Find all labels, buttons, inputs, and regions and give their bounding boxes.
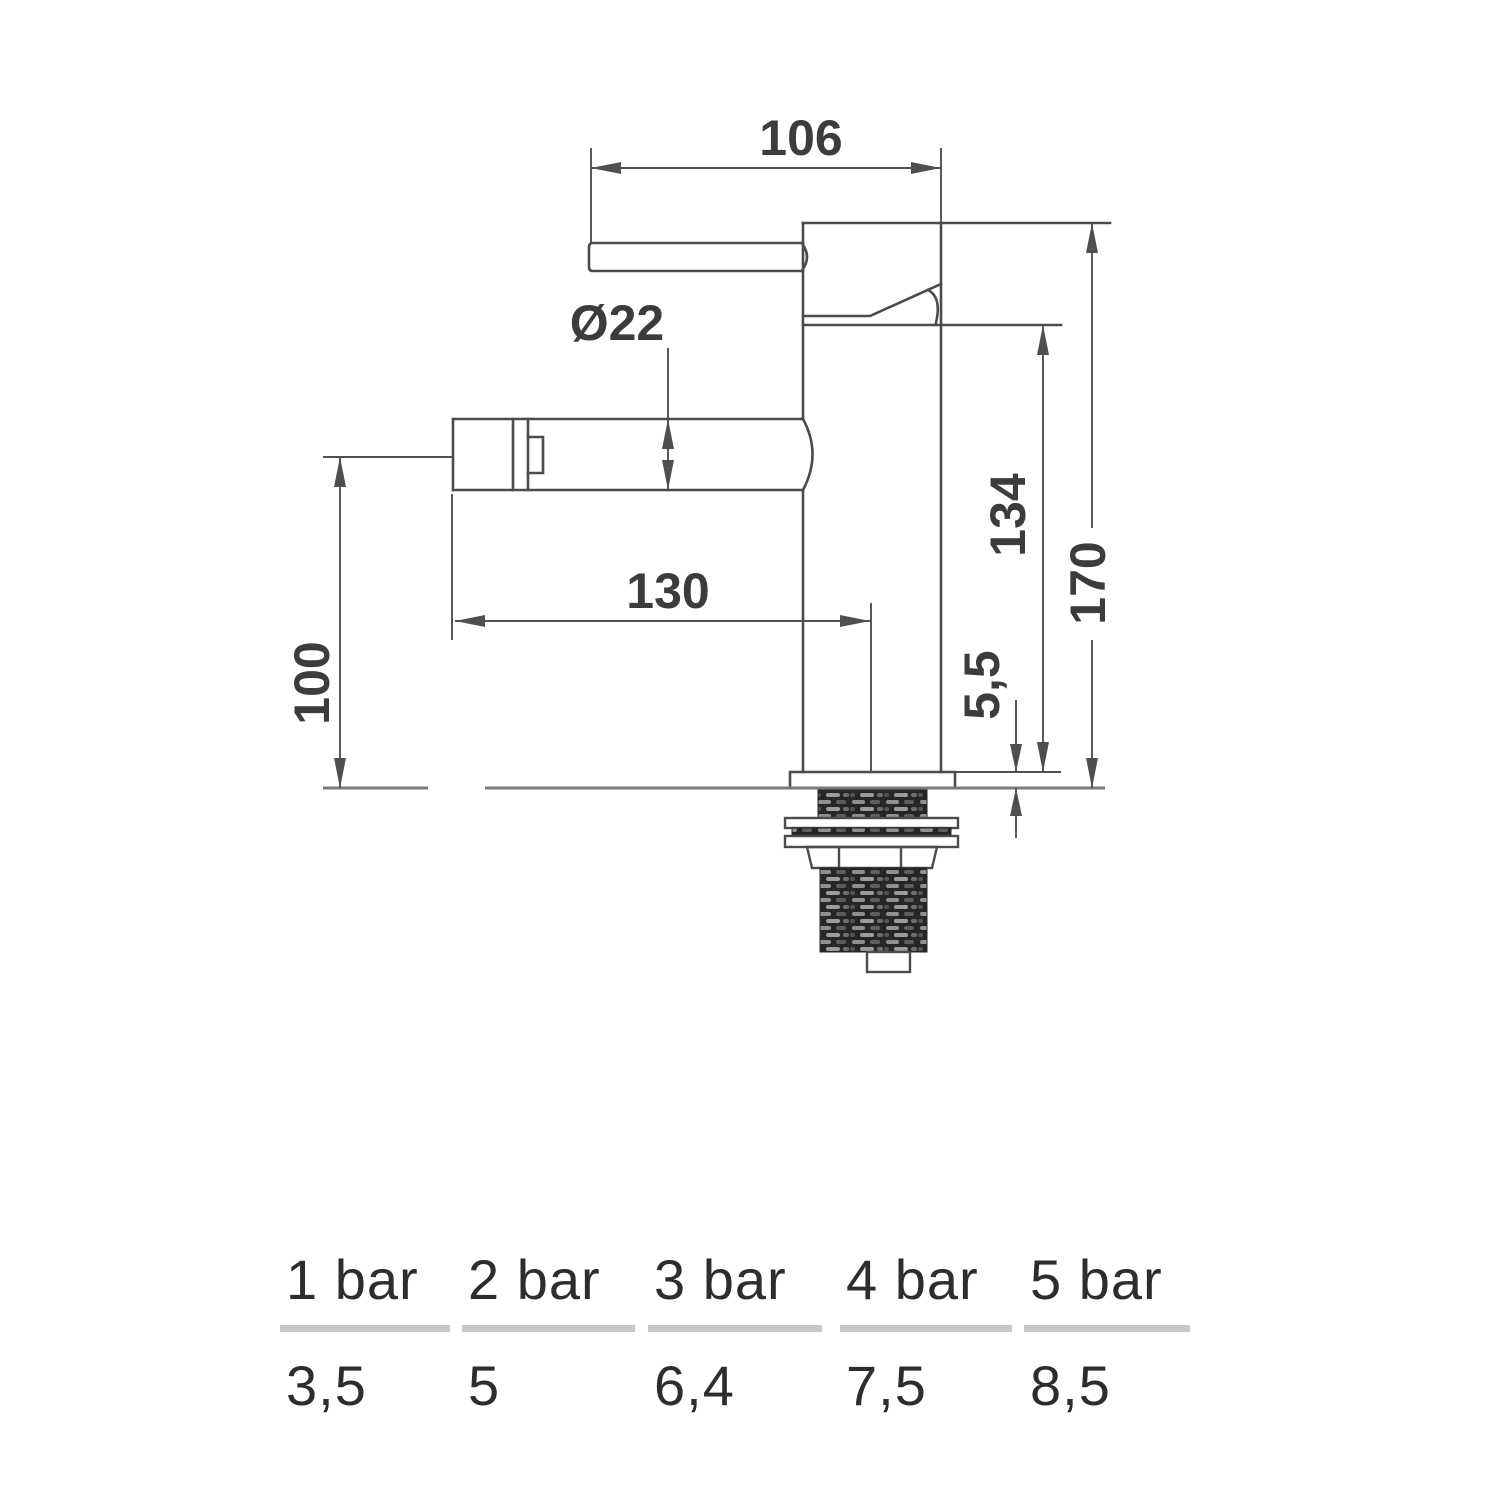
flow-column-1bar: 1 bar 3,5: [280, 1252, 452, 1414]
column-divider: [1024, 1325, 1190, 1332]
thread-upper: [818, 790, 927, 818]
pressure-header: 3 bar: [648, 1252, 820, 1308]
label-total-height: 170: [1060, 541, 1116, 624]
washer-plate-bottom: [785, 836, 958, 847]
column-divider: [840, 1325, 1012, 1332]
pressure-header: 5 bar: [1024, 1252, 1196, 1308]
label-spout-height: 100: [284, 641, 340, 724]
dimension-base-plate: [1010, 700, 1022, 838]
flow-column-5bar: 5 bar 8,5: [1024, 1252, 1196, 1414]
label-spout-diameter: Ø22: [570, 295, 665, 351]
dimension-total-height: [1086, 223, 1098, 788]
label-base-plate: 5,5: [954, 650, 1010, 720]
fixing-shank: [785, 790, 958, 972]
column-divider: [648, 1325, 822, 1332]
flow-column-3bar: 3 bar 6,4: [648, 1252, 820, 1414]
shank-end-tab: [867, 952, 910, 972]
label-body-height: 134: [980, 473, 1036, 557]
column-divider: [280, 1325, 450, 1332]
flow-rate-value: 5: [462, 1358, 634, 1414]
flow-column-2bar: 2 bar 5: [462, 1252, 634, 1414]
handle-lever: [589, 243, 807, 271]
flow-rate-value: 3,5: [280, 1358, 452, 1414]
flow-column-4bar: 4 bar 7,5: [840, 1252, 1012, 1414]
spout: [453, 419, 813, 490]
thread-lower: [820, 868, 927, 952]
flow-rate-value: 6,4: [648, 1358, 820, 1414]
rubber-gasket: [792, 828, 951, 836]
pressure-header: 1 bar: [280, 1252, 452, 1308]
column-divider: [462, 1325, 635, 1332]
label-spout-reach: 130: [626, 563, 709, 619]
dimension-spout-reach: [452, 494, 871, 772]
washer-plate-top: [785, 818, 958, 828]
dimension-spout-height: [323, 457, 453, 788]
flow-rate-value: 7,5: [840, 1358, 1012, 1414]
pressure-header: 2 bar: [462, 1252, 634, 1308]
faucet-spec-page: 106 Ø22 130 100 134 170 5,5 1 bar 3,5 2 …: [0, 0, 1500, 1500]
flow-rate-table: 1 bar 3,5 2 bar 5 3 bar 6,4 4 bar 7,5 5 …: [0, 1252, 1500, 1452]
pressure-header: 4 bar: [840, 1252, 1012, 1308]
label-top-width: 106: [759, 110, 842, 166]
base-plate: [790, 772, 955, 788]
flow-rate-value: 8,5: [1024, 1358, 1196, 1414]
fixing-nut: [807, 847, 937, 868]
